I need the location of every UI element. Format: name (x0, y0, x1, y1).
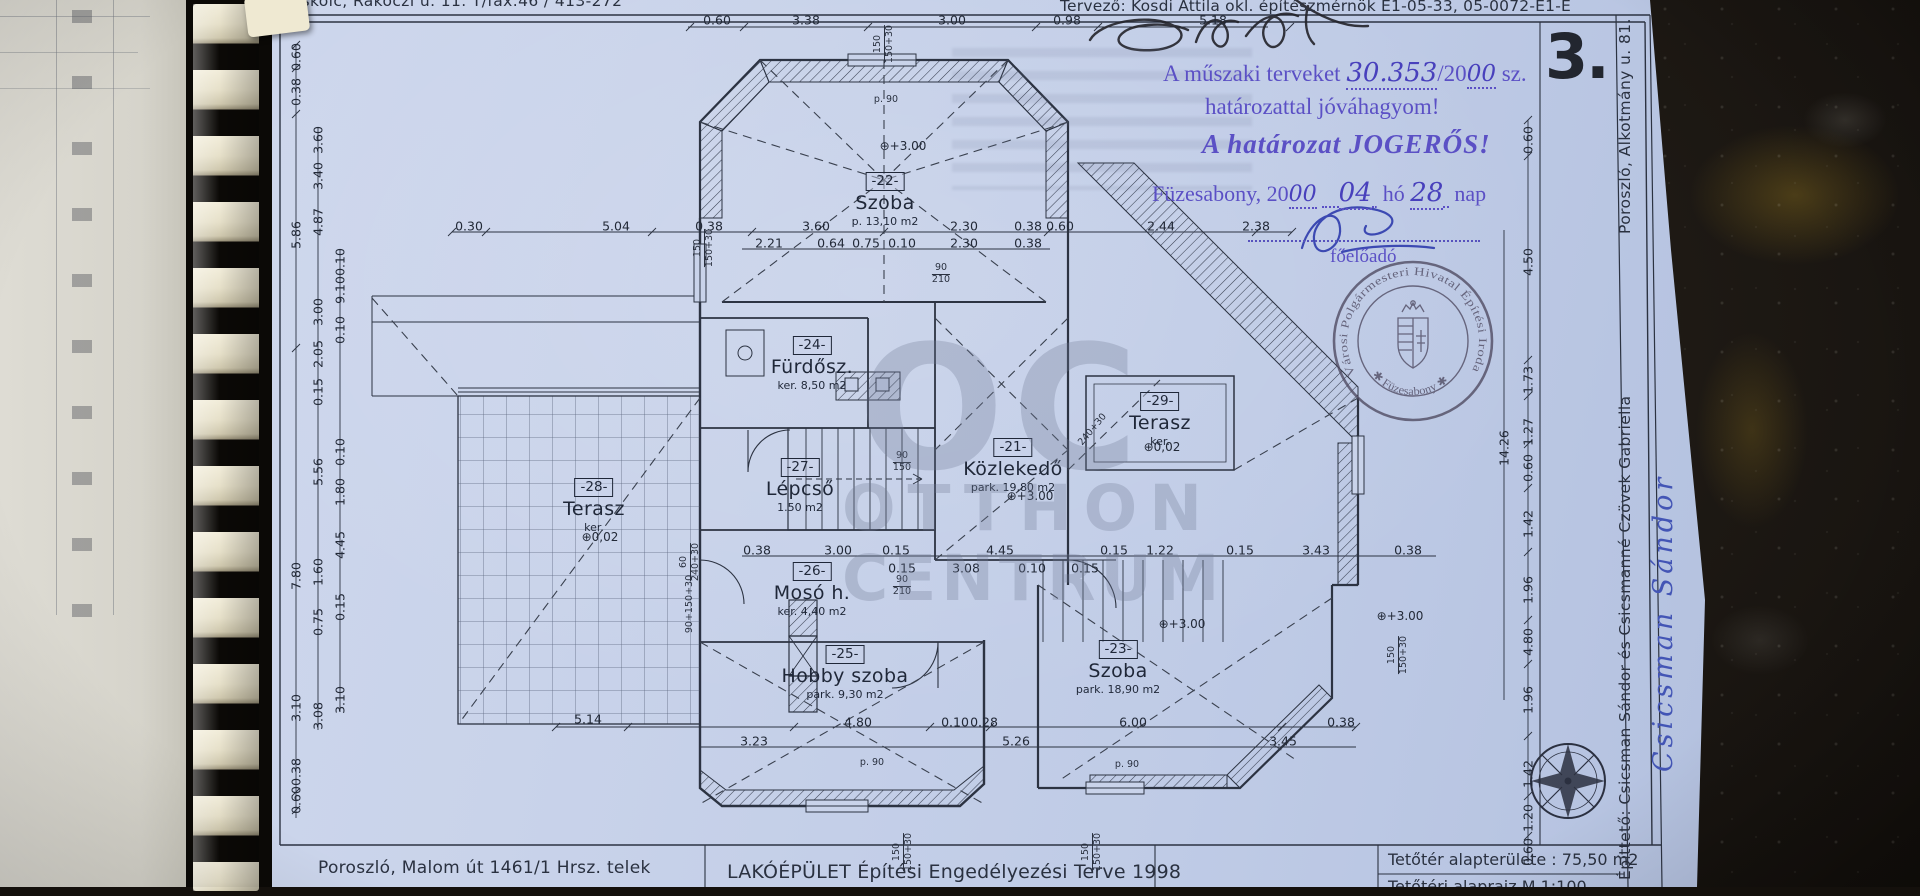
dimension-label: 0.38 (1014, 236, 1042, 251)
dimension-label: 0.38 (743, 543, 771, 558)
dimension-label: 0.38 (289, 758, 304, 786)
binding-hole-marks (72, 10, 92, 660)
dimension-label: 1.73 (1521, 366, 1536, 394)
opening-size-label: p. 90 (1115, 760, 1139, 771)
dimension-label: 3.10 (333, 686, 348, 714)
dimension-label: 9.10 (333, 276, 348, 304)
dimension-label: 5.56 (311, 458, 326, 486)
opening-size-label: 150150+30 (1387, 636, 1409, 674)
dimension-label: 5.14 (574, 712, 602, 727)
dimension-label: 2.44 (1147, 219, 1175, 234)
opening-size-label: 150150+30 (693, 229, 715, 267)
dimension-label: 0.38 (1014, 219, 1042, 234)
dimension-label: 0.64 (817, 236, 845, 251)
opening-size-label: 90+150+30 (685, 575, 696, 633)
dimension-label: 7.80 (289, 562, 304, 590)
binding-teeth (193, 4, 259, 891)
dimension-label: 5.04 (602, 219, 630, 234)
room-label: -23-Szobapark. 18,90 m2 (1076, 638, 1160, 696)
dimension-label: 3.45 (1269, 734, 1297, 749)
dimension-label: 0.10 (333, 316, 348, 344)
room-label: -22-Szobap. 13,10 m2 (852, 170, 919, 228)
opening-size-label: p. 90 (874, 95, 898, 106)
dimension-label: 0.15 (1226, 543, 1254, 558)
dimension-label: 2.30 (950, 219, 978, 234)
dimension-label: 0.28 (970, 715, 998, 730)
dimension-label: 4.50 (1521, 248, 1536, 276)
dimension-label: 1.20 (1521, 804, 1536, 832)
underlying-drawing-lines (0, 52, 138, 53)
dimension-label: 0.75 (311, 608, 326, 636)
dimension-label: 1.27 (1521, 418, 1536, 446)
dimension-label: 3.60 (802, 219, 830, 234)
dimension-label: 0.10 (333, 248, 348, 276)
dimension-label: 1.60 (311, 558, 326, 586)
blueprint-sheet: Városi Polgármesteri Hivatal Építési Iro… (0, 0, 1920, 887)
dimension-label: 4.87 (311, 208, 326, 236)
dimension-label: 0.60 (1521, 838, 1536, 866)
dimension-label: 3.60 (311, 126, 326, 154)
dimension-label: 1.42 (1521, 760, 1536, 788)
dimension-label: 5.18 (1199, 13, 1227, 28)
dimension-label: 2.30 (950, 236, 978, 251)
dimension-label: 0.60 (1521, 126, 1536, 154)
dimension-label: 14.26 (1497, 430, 1512, 466)
dimension-label: 3.40 (311, 162, 326, 190)
dimension-label: 1.96 (1521, 576, 1536, 604)
dimension-label: 1.80 (333, 478, 348, 506)
dimension-label: 2.05 (311, 340, 326, 368)
opening-size-label: 150150+30 (873, 25, 895, 63)
dimension-label: 0.10 (941, 715, 969, 730)
dimension-label: 5.26 (1002, 734, 1030, 749)
dimension-label: 3.00 (311, 298, 326, 326)
dimension-label: 0.75 (852, 236, 880, 251)
photo-of-blueprint: { "header": { "address_top": "Miskolc, R… (0, 0, 1920, 887)
dimension-label: 4.45 (333, 531, 348, 559)
room-label: -25-Hobby szobapark. 9,30 m2 (782, 643, 909, 701)
dimension-label: 2.21 (755, 236, 783, 251)
dimension-label: 0.15 (311, 378, 326, 406)
dimension-label: 0.38 (1394, 543, 1422, 558)
dimension-label: 0.60 (289, 43, 304, 71)
dimension-label: 0.30 (455, 219, 483, 234)
dimension-label: 3.38 (792, 13, 820, 28)
dimension-label: 0.10 (333, 438, 348, 466)
opening-size-label: p. 90 (860, 758, 884, 769)
dimension-label: 5.86 (289, 221, 304, 249)
dimension-label: 0.38 (289, 78, 304, 106)
level-mark: ⊕+3.00 (1377, 609, 1424, 623)
watermark-text: OTTHON (842, 472, 1214, 545)
dimension-label: 3.43 (1302, 543, 1330, 558)
dimension-label: 6.00 (1119, 715, 1147, 730)
room-label: -26-Mosó h.ker. 4,40 m2 (774, 560, 850, 618)
dimension-label: 0.60 (289, 786, 304, 814)
dimension-label: 4.80 (844, 715, 872, 730)
dimension-label: 0.15 (333, 593, 348, 621)
dimension-label: 4.80 (1521, 628, 1536, 656)
dimension-label: 3.10 (289, 694, 304, 722)
room-label: -27-Lépcső1.50 m2 (766, 456, 834, 514)
opening-size-label: 150150+30 (1081, 833, 1103, 871)
dimension-label: 0.10 (888, 236, 916, 251)
room-label: -28-Teraszker. (563, 476, 625, 534)
dimension-label: 3.08 (311, 702, 326, 730)
spiral-comb-binding (186, 0, 272, 887)
watermark-text: CENTRUM (842, 542, 1224, 615)
level-mark: ⊕+3.00 (880, 139, 927, 153)
dimension-label: 0.60 (703, 13, 731, 28)
opening-size-label: 150150+30 (892, 833, 914, 871)
dimension-label: 2.38 (1242, 219, 1270, 234)
level-mark: ⊕+3.00 (1159, 617, 1206, 631)
opening-size-label: 90210 (932, 263, 950, 285)
room-label: -24-Fürdősz.ker. 8,50 m2 (771, 334, 853, 392)
dimension-label: 0.38 (1327, 715, 1355, 730)
dimension-label: 3.00 (938, 13, 966, 28)
dimension-label: 1.96 (1521, 686, 1536, 714)
dimension-label: 0.60 (1046, 219, 1074, 234)
dimension-label: 0.98 (1053, 13, 1081, 28)
dimension-label: 1.42 (1521, 510, 1536, 538)
dimension-label: 0.60 (1521, 454, 1536, 482)
dimension-label: 3.23 (740, 734, 768, 749)
